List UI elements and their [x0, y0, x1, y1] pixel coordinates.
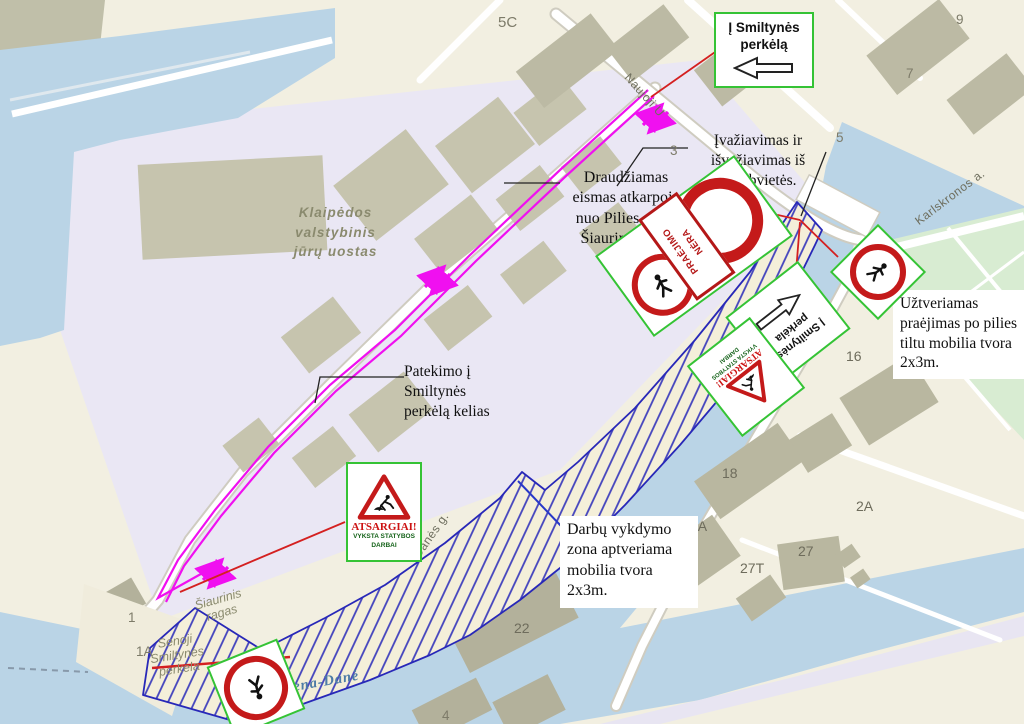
building-number: 5C: [498, 14, 517, 31]
old-ferry-label: Senoji Smiltynės perkėla: [147, 630, 207, 680]
atsargiai-title: ATSARGIAI!: [351, 521, 416, 533]
building-number: 22: [514, 620, 530, 636]
building-number: 7: [906, 66, 914, 81]
pedestrian-icon: [237, 669, 275, 706]
roadworks-triangle-icon: [356, 473, 412, 521]
left-arrow-icon: [733, 56, 795, 80]
building-number: 18: [722, 465, 738, 481]
building-number: 3: [670, 143, 678, 158]
callout-closed-passage: Užtveriamas praėjimas po pilies tiltu mo…: [893, 290, 1024, 379]
building-number: 27T: [740, 560, 764, 576]
building-number: 2A: [856, 498, 873, 514]
building-number: 1: [128, 610, 136, 625]
callout-work-zone: Darbų vykdymo zona aptveriama mobilia tv…: [560, 516, 698, 608]
to-ferry-direction-box: Į Smiltynės perkėlą: [714, 12, 814, 88]
building-number: 1A: [136, 644, 153, 659]
port-area-label: Klaipėdos valstybinis jūrų uostas: [268, 203, 403, 262]
construction-plan-map: Klaipėdos valstybinis jūrų uostas Naujoj…: [0, 0, 1024, 724]
building-number: 16: [846, 348, 862, 364]
callout-access-road: Patekimo į Smiltynės perkėlą kelias: [404, 362, 520, 421]
atsargiai-subtitle: VYKSTA STATYBOS DARBAI: [353, 533, 415, 551]
pedestrian-icon: [859, 253, 897, 291]
building-number: 27: [798, 543, 814, 559]
atsargiai-sign: ATSARGIAI! VYKSTA STATYBOS DARBAI: [346, 462, 422, 562]
to-ferry-box-text: Į Smiltynės perkėlą: [728, 20, 799, 54]
building-number: 5: [836, 130, 844, 145]
building-number: 4: [442, 708, 450, 723]
building-number: 9: [956, 12, 964, 27]
